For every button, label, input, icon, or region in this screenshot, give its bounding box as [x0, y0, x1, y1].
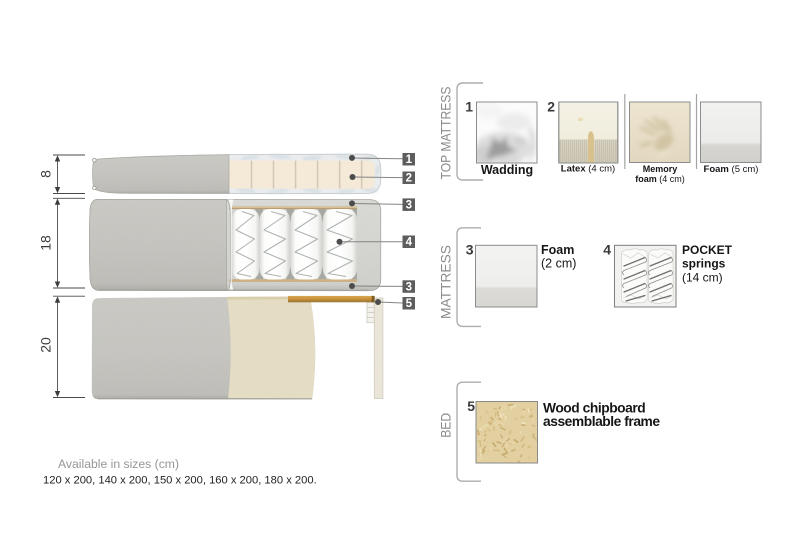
svg-text:2: 2	[406, 173, 412, 185]
svg-text:3: 3	[466, 242, 474, 258]
svg-text:1: 1	[465, 99, 473, 115]
svg-text:18: 18	[38, 235, 54, 251]
svg-text:2: 2	[547, 99, 555, 115]
svg-text:Memory: Memory	[643, 164, 678, 174]
svg-text:20: 20	[38, 337, 54, 353]
svg-text:120 x 200, 140 x 200, 150 x 20: 120 x 200, 140 x 200, 150 x 200, 160 x 2…	[43, 475, 317, 487]
svg-text:BED: BED	[439, 413, 454, 438]
svg-text:Latex (4 cm): Latex (4 cm)	[561, 164, 615, 175]
svg-text:MATTRESS: MATTRESS	[439, 245, 454, 319]
svg-text:5: 5	[467, 398, 475, 414]
svg-text:4: 4	[406, 237, 413, 249]
svg-text:foam (4 cm): foam (4 cm)	[635, 174, 685, 184]
svg-text:springs: springs	[682, 257, 726, 271]
svg-text:8: 8	[38, 170, 54, 178]
svg-text:3: 3	[406, 282, 412, 294]
svg-text:Available in sizes (cm): Available in sizes (cm)	[58, 457, 179, 471]
svg-text:3: 3	[406, 200, 412, 212]
svg-text:TOP MATTRESS: TOP MATTRESS	[439, 87, 454, 180]
svg-text:(2 cm): (2 cm)	[541, 257, 576, 271]
svg-text:4: 4	[603, 242, 611, 258]
svg-text:5: 5	[406, 298, 413, 310]
svg-text:Wadding: Wadding	[481, 163, 533, 177]
svg-text:1: 1	[406, 154, 413, 166]
svg-text:assemblable frame: assemblable frame	[543, 414, 660, 429]
svg-text:Foam (5 cm): Foam (5 cm)	[704, 164, 759, 175]
svg-text:(14 cm): (14 cm)	[682, 270, 723, 284]
svg-text:POCKET: POCKET	[682, 243, 733, 257]
svg-text:Foam: Foam	[541, 243, 574, 257]
